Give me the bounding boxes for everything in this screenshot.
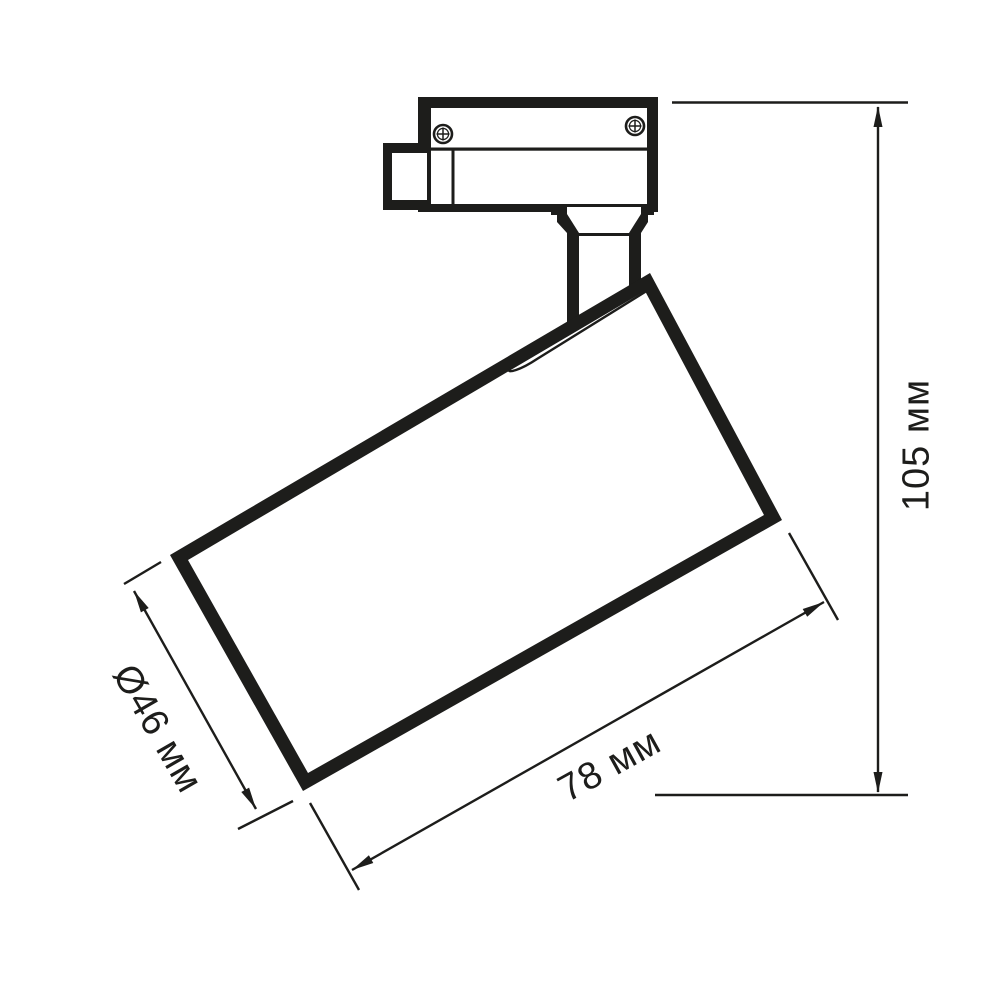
technical-drawing: 105 мм 78 мм Ø46 мм xyxy=(0,0,1000,1000)
dimension-label-height: 105 мм xyxy=(896,379,939,511)
arrowhead-up xyxy=(874,106,883,127)
lamp-face xyxy=(188,291,764,773)
arrowhead-down xyxy=(874,772,883,793)
extension-line-upper xyxy=(124,562,161,584)
extension-line-lower xyxy=(238,801,293,829)
adapter-divider-line xyxy=(431,148,647,151)
arrowhead-up-left xyxy=(134,591,149,612)
arrowhead-lower-left xyxy=(352,855,373,870)
adapter-tab xyxy=(383,143,431,210)
adapter-inner-line xyxy=(452,150,455,204)
lamp-body xyxy=(170,273,782,791)
screw-left xyxy=(434,125,452,143)
arrowhead-down-right xyxy=(241,788,256,809)
extension-line-left xyxy=(310,803,359,890)
arrowhead-upper-right xyxy=(803,602,824,617)
track-adapter xyxy=(383,97,658,212)
track-light-diagram xyxy=(0,0,1000,1000)
screw-right xyxy=(626,117,644,135)
